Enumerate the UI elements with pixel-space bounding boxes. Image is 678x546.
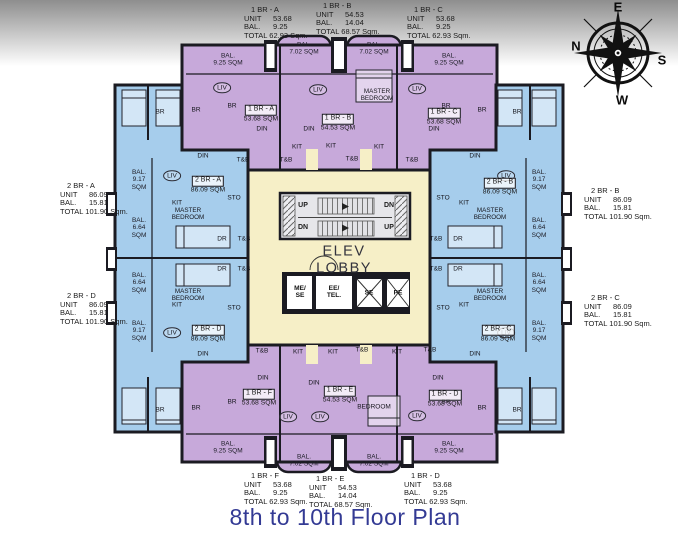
unit-tag-area: 53.68 SQM [242, 400, 276, 408]
room-label: T&B [280, 156, 293, 163]
room-label: LIV [408, 83, 426, 94]
compass-rose-icon [566, 0, 670, 106]
room-label: LIV [408, 410, 426, 421]
balcony-label: BAL. 9.25 SQM [434, 53, 463, 68]
room-label: MASTER BEDROOM [163, 207, 213, 221]
elev-lobby-label: ELEV LOBBY [316, 243, 372, 276]
balcony-label: BAL. 9.25 SQM [213, 441, 242, 456]
balcony-label: BAL. 7.02 SQM [289, 454, 318, 469]
elevator-cell-label: ME/ SE [294, 285, 306, 300]
room-label: LIV [163, 170, 181, 181]
unit-tag: 1 BR - E54.53 SQM [323, 379, 357, 406]
room-label: DIN [256, 125, 267, 132]
room-label: LIV [279, 411, 297, 422]
unit-tag-name: 1 BR - E [324, 386, 356, 397]
room-label: LIV [213, 82, 231, 93]
room-label: BR [227, 102, 236, 109]
unit-info-block: 1 BR - FUNIT53.68BAL.9.25TOTAL 62.93 Sqm… [244, 472, 308, 507]
balcony-label: BAL. 7.02 SQM [359, 454, 388, 469]
room-label: T&B [256, 347, 269, 354]
room-label: T&B [237, 156, 250, 163]
stair-direction-label: UP [298, 202, 308, 210]
unit-tag-area: 54.53 SQM [323, 397, 357, 405]
room-label: MASTER BEDROOM [352, 88, 402, 102]
room-label: DR [453, 265, 462, 272]
room-label: DIN [197, 152, 208, 159]
room-label: LIV [309, 84, 327, 95]
room-label: BR [477, 106, 486, 113]
unit-info-block: 1 BR - BUNIT54.53BAL.14.04TOTAL 68.57 Sq… [316, 2, 380, 37]
room-label: T&B [430, 235, 443, 242]
unit-tag-area: 86.09 SQM [481, 336, 515, 344]
room-label: DR [217, 265, 226, 272]
balcony-label: BAL. 6.64 SQM [532, 217, 547, 239]
unit-tag-area: 54.53 SQM [321, 125, 355, 133]
balcony-label: BAL. 6.64 SQM [132, 272, 147, 294]
balcony-label: BAL. 9.17 SQM [132, 169, 147, 191]
unit-tag-name: 2 BR - A [192, 176, 224, 187]
unit-tag-name: 1 BR - C [428, 108, 461, 119]
compass-rose: E N S W [566, 0, 670, 106]
unit-info-block: 2 BR - DUNIT86.09BAL.15.81TOTAL 101.90 S… [60, 292, 128, 327]
unit-info-block: 1 BR - AUNIT53.68BAL.9.25TOTAL 62.93 Sqm… [244, 6, 308, 41]
unit-info-total: TOTAL 68.57 Sqm. [316, 28, 380, 37]
balcony-label: BAL. 9.17 SQM [532, 169, 547, 191]
balcony-label: BAL. 9.17 SQM [532, 320, 547, 342]
room-label: DIN [308, 379, 319, 386]
room-label: T&B [424, 346, 437, 353]
stair-direction-label: UP [384, 224, 394, 232]
room-label: KIT [459, 199, 469, 206]
room-label: T&B [356, 346, 369, 353]
room-label: KIT [326, 142, 336, 149]
room-label: DIN [432, 374, 443, 381]
room-label: MASTER BEDROOM [465, 288, 515, 302]
room-label: DR [453, 235, 462, 242]
unit-info-total: TOTAL 62.93 Sqm. [244, 32, 308, 41]
elevator-cell-label: PE [394, 289, 403, 296]
unit-tag-name: 1 BR - D [429, 390, 462, 401]
room-label: KIT [293, 348, 303, 355]
balcony-label: BAL. 6.64 SQM [132, 217, 147, 239]
unit-tag-area: 53.68 SQM [427, 119, 461, 127]
unit-tag: 1 BR - D53.68 SQM [428, 383, 462, 410]
stair-direction-label: DN [384, 202, 394, 210]
unit-info-total: TOTAL 62.93 Sqm. [407, 32, 471, 41]
room-label: T&B [430, 265, 443, 272]
compass-n-label: N [571, 39, 580, 54]
unit-info-block: 1 BR - DUNIT53.68BAL.9.25TOTAL 62.93 Sqm… [404, 472, 468, 507]
room-label: DIN [197, 350, 208, 357]
unit-info-block: 2 BR - CUNIT86.09BAL.15.81TOTAL 101.90 S… [584, 294, 652, 329]
elevator-cell-label: EE/ TEL. [327, 285, 341, 300]
unit-tag: 2 BR - D86.09 SQM [191, 318, 225, 345]
room-label: T&B [346, 155, 359, 162]
room-label: BR [155, 108, 164, 115]
room-label: STO [227, 304, 240, 311]
unit-tag: 1 BR - B54.53 SQM [321, 107, 355, 134]
unit-info-total: TOTAL 101.90 Sqm. [60, 318, 128, 327]
room-label: BR [512, 108, 521, 115]
unit-info-total: TOTAL 101.90 Sqm. [584, 320, 652, 329]
room-label: DIN [303, 125, 314, 132]
room-label: T&B [238, 265, 251, 272]
unit-info-block: 2 BR - BUNIT86.09BAL.15.81TOTAL 101.90 S… [584, 187, 652, 222]
room-label: KIT [374, 143, 384, 150]
room-label: MASTER BEDROOM [163, 288, 213, 302]
unit-tag-area: 86.09 SQM [191, 187, 225, 195]
room-label: KIT [459, 301, 469, 308]
room-label: T&B [406, 156, 419, 163]
labels-layer: 1 BR - AUNIT53.68BAL.9.25TOTAL 62.93 Sqm… [0, 0, 678, 546]
unit-info-total: TOTAL 101.90 Sqm. [584, 213, 652, 222]
unit-tag-name: 2 BR - D [192, 325, 225, 336]
room-label: KIT [292, 143, 302, 150]
unit-info-block: 2 BR - AUNIT86.09BAL.15.81TOTAL 101.90 S… [60, 182, 128, 217]
unit-tag: 1 BR - C53.68 SQM [427, 101, 461, 128]
room-label: BEDROOM [357, 403, 391, 410]
room-label: BR [227, 398, 236, 405]
room-label: KIT [328, 348, 338, 355]
room-label: BR [512, 406, 521, 413]
unit-info-block: 1 BR - CUNIT53.68BAL.9.25TOTAL 62.93 Sqm… [407, 6, 471, 41]
room-label: DIN [469, 350, 480, 357]
unit-tag: 2 BR - B86.09 SQM [483, 171, 517, 198]
plan-title: 8th to 10th Floor Plan [230, 504, 461, 531]
room-label: LIV [163, 327, 181, 338]
room-label: KIT [172, 301, 182, 308]
unit-tag-name: 2 BR - B [484, 178, 516, 189]
unit-tag-area: 53.68 SQM [244, 116, 278, 124]
balcony-label: BAL. 7.02 SQM [359, 42, 388, 57]
unit-tag: 1 BR - A53.68 SQM [244, 98, 278, 125]
unit-tag: 2 BR - A86.09 SQM [191, 169, 225, 196]
room-label: BR [191, 404, 200, 411]
room-label: BR [191, 106, 200, 113]
balcony-label: BAL. 7.02 SQM [289, 42, 318, 57]
unit-tag-name: 1 BR - B [322, 114, 354, 125]
unit-tag-name: 1 BR - F [243, 389, 275, 400]
room-label: DR [217, 235, 226, 242]
compass-w-label: W [616, 93, 628, 108]
balcony-label: BAL. 9.17 SQM [132, 320, 147, 342]
unit-tag-name: 2 BR - C [482, 325, 515, 336]
room-label: LIV [311, 411, 329, 422]
compass-s-label: S [658, 53, 667, 68]
compass-e-label: E [614, 0, 623, 15]
room-label: STO [436, 304, 449, 311]
room-label: MASTER BEDROOM [465, 207, 515, 221]
room-label: DIN [257, 374, 268, 381]
stair-direction-label: DN [298, 224, 308, 232]
floor-plan-screen: 1 BR - AUNIT53.68BAL.9.25TOTAL 62.93 Sqm… [0, 0, 678, 546]
unit-tag-area: 86.09 SQM [191, 336, 225, 344]
room-label: KIT [392, 348, 402, 355]
unit-tag: 2 BR - C86.09 SQM [481, 318, 515, 345]
unit-info-total: TOTAL 101.90 Sqm. [60, 208, 128, 217]
room-label: KIT [172, 199, 182, 206]
unit-tag-area: 86.09 SQM [483, 189, 517, 197]
balcony-label: BAL. 9.25 SQM [213, 53, 242, 68]
room-label: T&B [238, 235, 251, 242]
unit-tag: 1 BR - F53.68 SQM [242, 382, 276, 409]
room-label: DIN [469, 152, 480, 159]
balcony-label: BAL. 6.64 SQM [532, 272, 547, 294]
unit-tag-area: 53.68 SQM [428, 401, 462, 409]
room-label: BR [155, 406, 164, 413]
room-label: STO [227, 194, 240, 201]
unit-tag-name: 1 BR - A [245, 105, 277, 116]
room-label: STO [436, 194, 449, 201]
balcony-label: BAL. 9.25 SQM [434, 441, 463, 456]
elevator-cell-label: SE [365, 289, 374, 296]
room-label: BR [477, 404, 486, 411]
